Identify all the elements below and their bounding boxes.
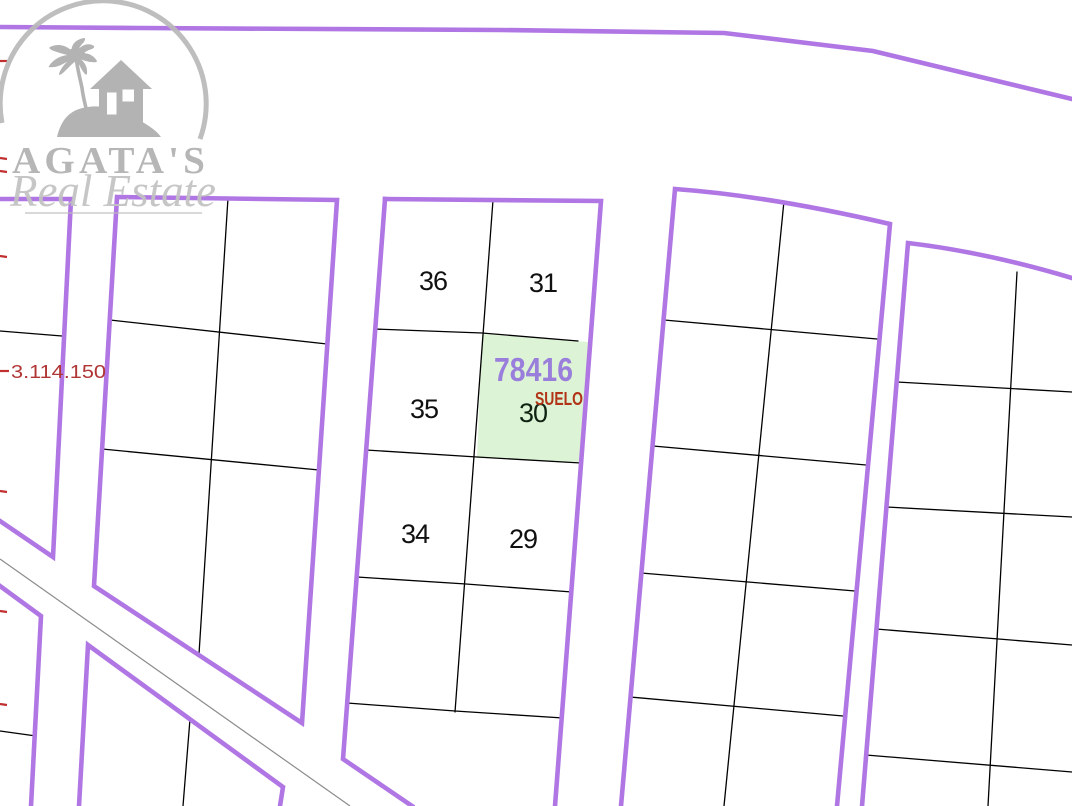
svg-text:34: 34 — [401, 519, 430, 549]
svg-text:36: 36 — [419, 266, 447, 296]
svg-text:3.114.150: 3.114.150 — [11, 362, 106, 382]
svg-text:Real Estate: Real Estate — [9, 165, 216, 216]
svg-text:SUELO: SUELO — [535, 389, 583, 409]
svg-text:31: 31 — [529, 268, 557, 298]
svg-text:29: 29 — [509, 524, 537, 554]
svg-text:35: 35 — [410, 394, 438, 424]
svg-text:78416: 78416 — [494, 351, 573, 388]
